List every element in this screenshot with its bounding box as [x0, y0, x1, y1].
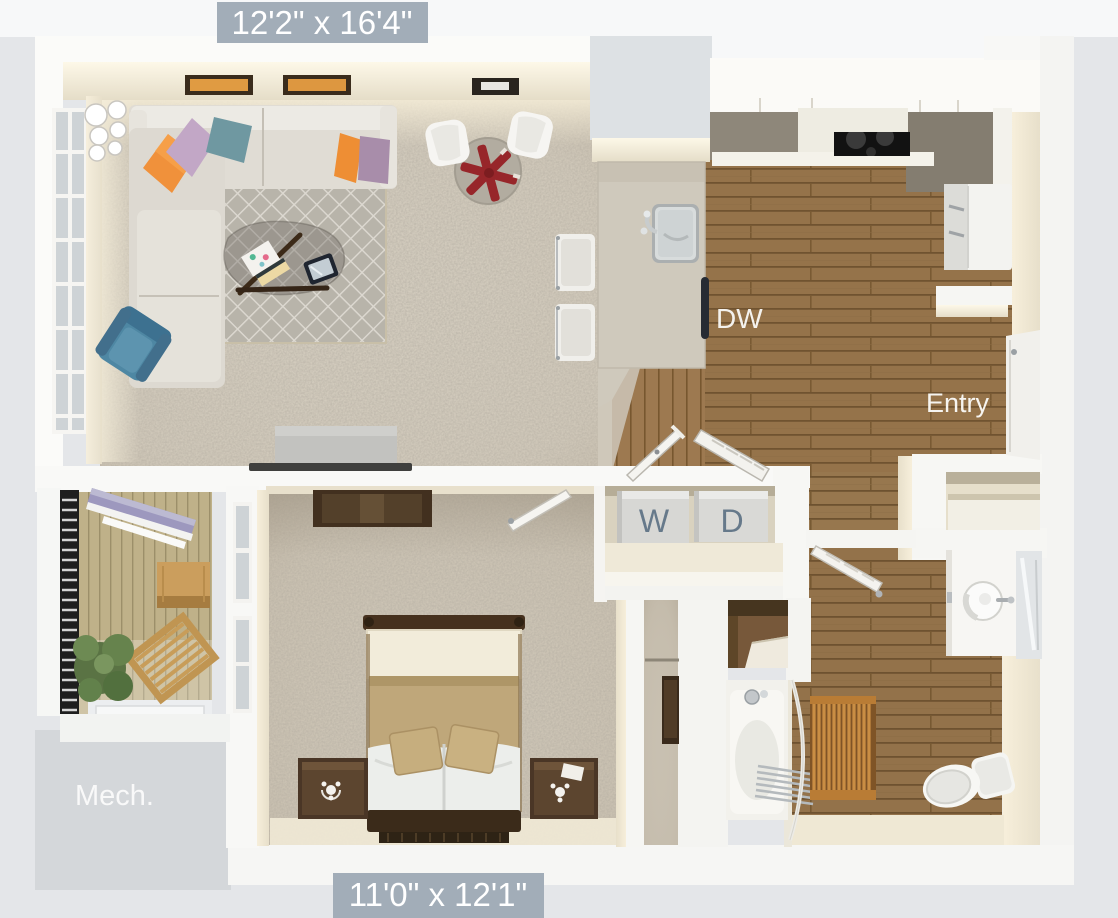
svg-text:Mech.: Mech.: [75, 780, 154, 812]
svg-text:DW: DW: [716, 303, 763, 334]
svg-text:Entry: Entry: [926, 388, 990, 418]
svg-text:W: W: [639, 503, 670, 539]
svg-text:D: D: [720, 503, 743, 539]
svg-text:11'0" x 12'1": 11'0" x 12'1": [349, 876, 528, 913]
svg-text:12'2" x 16'4": 12'2" x 16'4": [232, 4, 413, 41]
